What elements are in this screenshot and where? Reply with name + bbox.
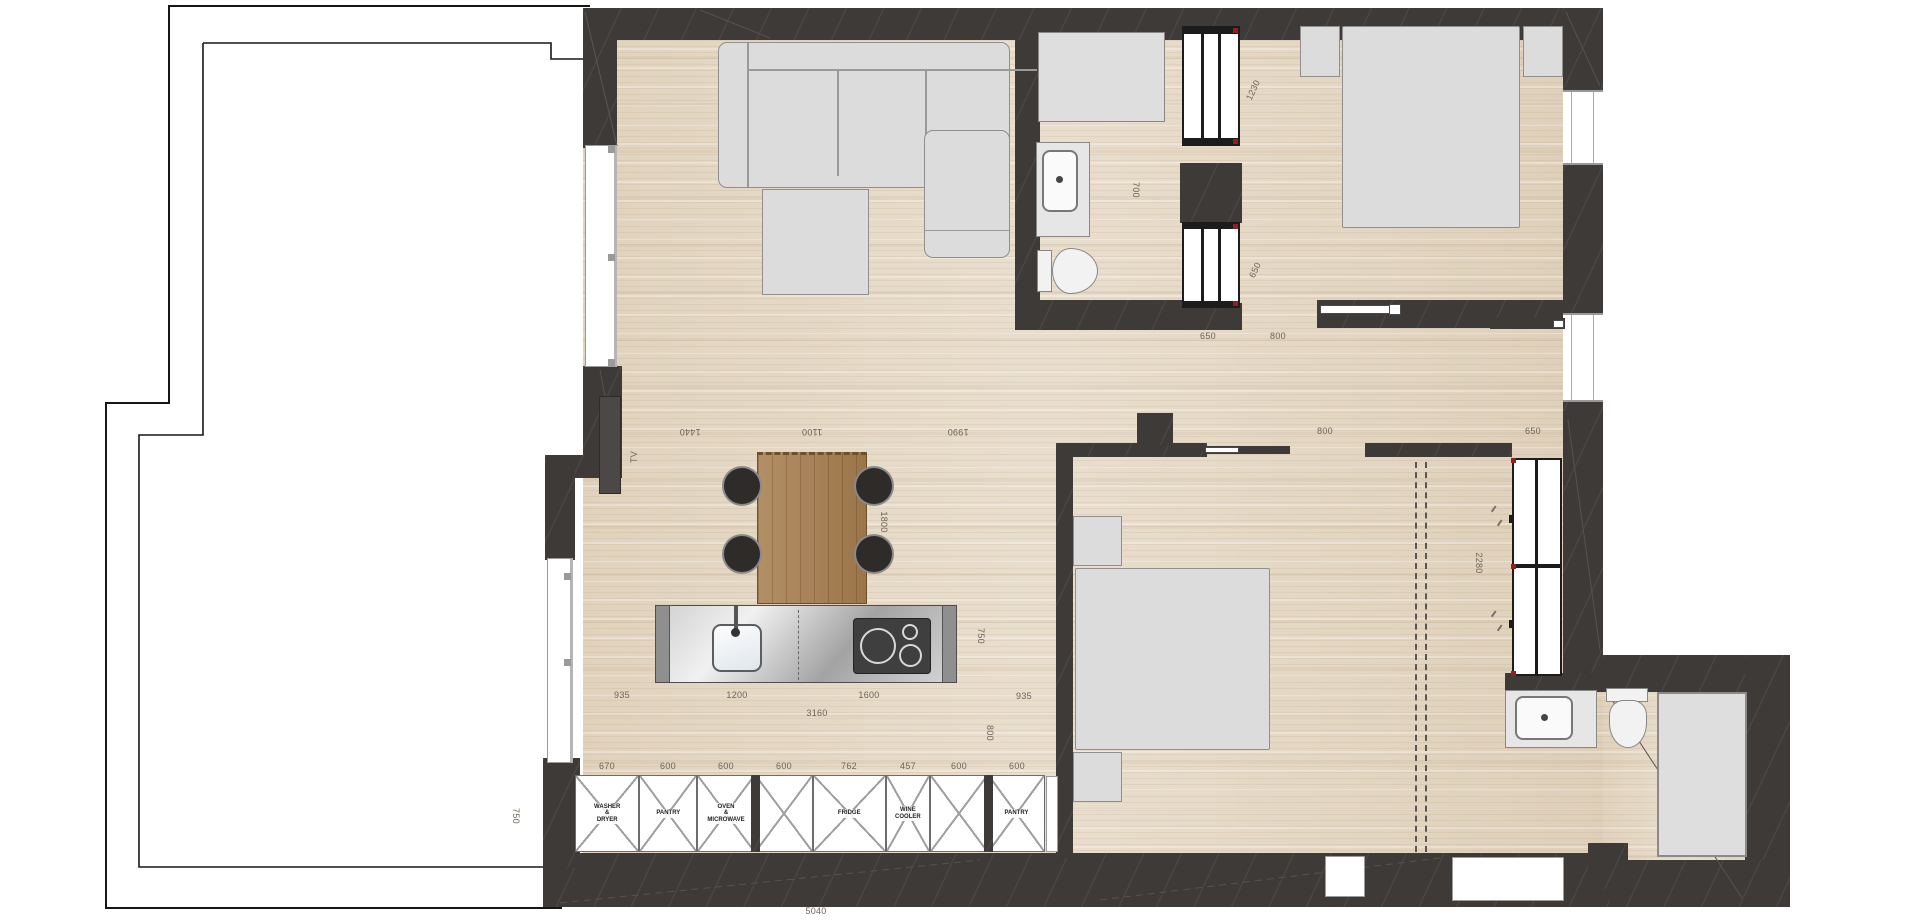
cabinet-blank-6 <box>930 775 988 852</box>
bath1-faucet-dot <box>1056 176 1063 183</box>
dimension-label-21: 5040 <box>805 906 826 916</box>
cabinet-washer-dryer: WASHER & DRYER <box>575 775 639 852</box>
cabinet-oven-microwave: OVEN & MICROWAVE <box>697 775 755 852</box>
cooktop-burner-medium <box>899 644 922 667</box>
pocket-door-bath1-handle <box>1389 304 1401 315</box>
cabinet-label: OVEN & MICROWAVE <box>705 803 746 825</box>
wardrobe-slide-line-2 <box>1425 462 1427 852</box>
cabinet-separator-wall <box>751 775 760 852</box>
tall-window-hall <box>1512 458 1562 676</box>
cabinet-label: WASHER & DRYER <box>592 803 622 825</box>
dimension-label-22: 670 <box>599 761 615 771</box>
bed1-nightstand-right <box>1523 26 1563 77</box>
bed2 <box>1075 568 1270 750</box>
cabinet-wine-cooler: WINE COOLER <box>886 775 930 852</box>
window-hall-right <box>1563 313 1603 402</box>
dimension-label-23: 600 <box>660 761 676 771</box>
bath2-toilet-bowl <box>1609 700 1647 748</box>
window-living-left <box>585 145 617 367</box>
dimension-label-17: 2280 <box>1474 552 1484 573</box>
window-bottom-small <box>1325 856 1365 897</box>
dimension-label-12: 1800 <box>879 511 889 532</box>
dimension-label-0: 1440 <box>679 427 700 437</box>
dimension-label-18: 650 <box>1200 331 1216 341</box>
bed1-nightstand-left <box>1300 26 1340 77</box>
entry-door-opening <box>1452 857 1564 901</box>
cooktop-burner-large <box>860 628 896 664</box>
bath1-toilet-tank <box>1037 250 1052 292</box>
dimension-label-20: 750 <box>511 808 521 824</box>
floor-plan: WASHER & DRYERPANTRYOVEN & MICROWAVEFRID… <box>0 0 1920 920</box>
cabinet-label: PANTRY <box>1002 809 1030 818</box>
bath1-shower <box>1038 32 1165 122</box>
cabinet-end-gap <box>1046 776 1058 852</box>
cabinet-label: FRIDGE <box>836 809 863 818</box>
dimension-label-14: 700 <box>1131 182 1141 198</box>
cabinet-label: PANTRY <box>654 809 682 818</box>
dimension-label-28: 600 <box>951 761 967 771</box>
dimension-label-29: 600 <box>1009 761 1025 771</box>
dimension-label-11: 800 <box>985 725 995 741</box>
island-faucet-base <box>731 628 740 637</box>
dining-table <box>757 452 867 604</box>
dimension-label-24: 600 <box>718 761 734 771</box>
dimension-label-8: 935 <box>1016 691 1032 701</box>
cabinet-blank-3 <box>755 775 813 852</box>
dimension-label-4: 650 <box>1525 426 1541 436</box>
dimension-label-1: 1100 <box>802 427 823 437</box>
dimension-label-2: 1990 <box>947 427 968 437</box>
dimension-label-25: 600 <box>776 761 792 771</box>
dimension-label-27: 457 <box>900 761 916 771</box>
bed2-nightstand-bottom <box>1073 752 1122 802</box>
bed2-nightstand-top <box>1073 516 1122 566</box>
interior-window-2 <box>1182 222 1240 308</box>
cabinet-separator-wall <box>984 775 993 852</box>
tv-unit <box>599 396 621 494</box>
cabinet-pantry: PANTRY <box>639 775 697 852</box>
island-faucet <box>734 606 738 630</box>
cooktop-burner-small <box>902 624 918 640</box>
dimension-label-19: 800 <box>1270 331 1286 341</box>
dimension-label-26: 762 <box>841 761 857 771</box>
dining-chair-3 <box>856 468 892 504</box>
door-rail-bedroom1-handle <box>1553 320 1564 328</box>
bath2-shower <box>1657 692 1747 857</box>
pocket-door-bath1 <box>1320 305 1390 314</box>
dimension-label-13: TV <box>629 451 639 463</box>
cabinet-label: WINE COOLER <box>893 806 923 821</box>
dimension-label-10: 750 <box>976 628 986 644</box>
dining-chair-4 <box>856 536 892 572</box>
door-rail-bedroom2-leaf <box>1205 447 1239 453</box>
coffee-table <box>762 189 869 295</box>
wardrobe-slide-line-1 <box>1415 462 1417 852</box>
dimension-label-6: 1200 <box>726 690 747 700</box>
dimension-label-7: 1600 <box>858 690 879 700</box>
dimension-label-5: 935 <box>614 690 630 700</box>
dining-chair-2 <box>724 536 760 572</box>
dimension-label-3: 800 <box>1317 426 1333 436</box>
interior-window-1 <box>1182 26 1240 146</box>
window-bedroom1-right <box>1563 90 1603 165</box>
cabinet-pantry: PANTRY <box>988 775 1046 852</box>
dimension-label-9: 3160 <box>806 708 827 718</box>
window-kitchen-left <box>547 558 573 763</box>
cabinet-fridge: FRIDGE <box>813 775 886 852</box>
sofa-chaise <box>924 130 1010 258</box>
dining-chair-1 <box>724 468 760 504</box>
bath2-faucet-dot <box>1541 714 1548 721</box>
bed1 <box>1342 26 1520 228</box>
